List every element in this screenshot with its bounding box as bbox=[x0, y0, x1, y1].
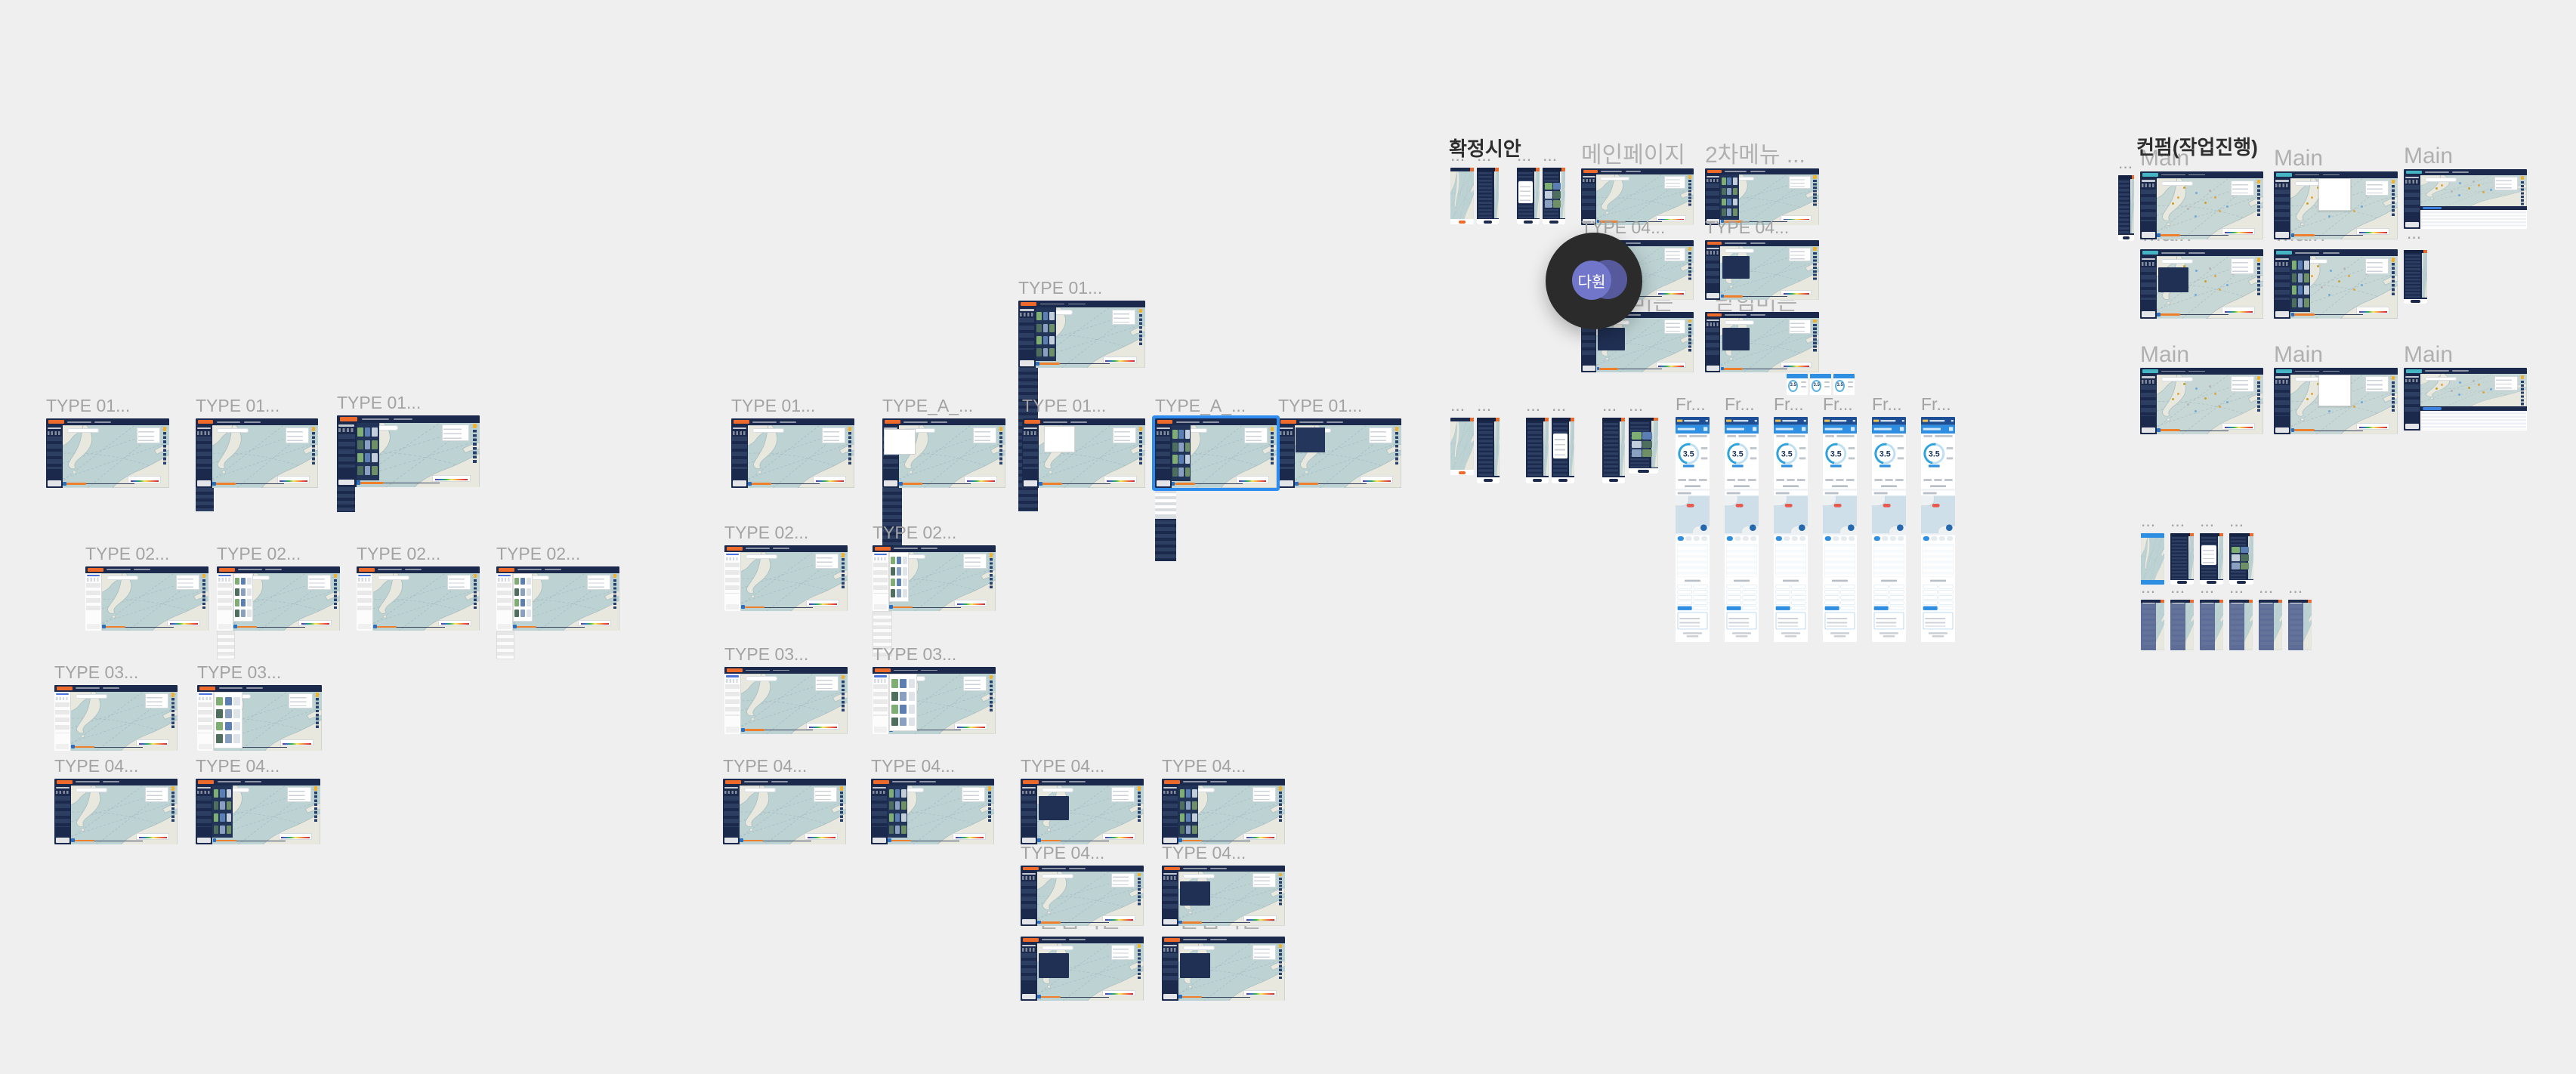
decor bbox=[365, 453, 370, 462]
decor bbox=[1742, 606, 1756, 610]
mini-panel-tooltip bbox=[1722, 328, 1750, 350]
decor bbox=[1723, 368, 1742, 370]
mini-header-dark bbox=[1872, 417, 1906, 425]
design-frame-map-dark[interactable] bbox=[1021, 866, 1144, 926]
mini-location-row bbox=[1774, 434, 1808, 440]
design-frame-phone-menu-dropdown[interactable] bbox=[1552, 418, 1574, 483]
mini-gauge-section: 3.5 bbox=[1676, 440, 1710, 477]
frame-title[interactable]: TYPE 02... bbox=[217, 544, 301, 563]
decor bbox=[216, 697, 223, 706]
decor bbox=[903, 589, 907, 597]
frame-title[interactable]: TYPE 01... bbox=[1018, 278, 1102, 298]
decor bbox=[1021, 302, 1036, 306]
frame-title[interactable]: TYPE 02... bbox=[85, 544, 169, 563]
decor bbox=[724, 796, 738, 827]
design-frame-map-light[interactable] bbox=[724, 667, 848, 734]
decor bbox=[895, 789, 900, 798]
mini-sidebar bbox=[337, 423, 357, 488]
frame-title[interactable]: ... bbox=[1543, 145, 1557, 165]
multiplayer-avatar-cursor[interactable]: 다훤 bbox=[1546, 233, 1642, 329]
decor bbox=[1185, 443, 1190, 452]
design-frame-map-dark[interactable] bbox=[1022, 418, 1145, 488]
decor bbox=[1042, 868, 1065, 869]
mini-info-box bbox=[1112, 310, 1136, 325]
decor bbox=[1742, 585, 1756, 588]
frame-title[interactable]: Main bbox=[2274, 342, 2323, 368]
frame-title[interactable]: Fr... bbox=[1774, 394, 1804, 414]
frame-title[interactable]: ... bbox=[1477, 395, 1491, 415]
design-frame-map-light[interactable] bbox=[54, 685, 178, 751]
frame-title[interactable]: TYPE 01... bbox=[337, 393, 421, 412]
decor bbox=[2405, 376, 2420, 378]
design-frame-map-dark[interactable] bbox=[1705, 240, 1819, 300]
mini-topbar bbox=[1021, 779, 1144, 785]
sidebar-extension[interactable] bbox=[496, 631, 514, 659]
design-frame-map-dark[interactable] bbox=[46, 418, 169, 488]
mini-topbar bbox=[217, 566, 340, 573]
mini-info-box bbox=[442, 424, 469, 441]
frame-title[interactable]: TYPE 01... bbox=[196, 396, 280, 415]
mini-gauge-section: 3.5 bbox=[1823, 440, 1857, 477]
decor bbox=[2328, 215, 2330, 218]
decor bbox=[724, 791, 739, 795]
decor bbox=[2452, 171, 2469, 173]
frame-title[interactable]: TYPE 03... bbox=[197, 662, 281, 682]
frame-title[interactable]: Fr... bbox=[1872, 394, 1902, 414]
decor bbox=[2361, 205, 2363, 208]
decor bbox=[281, 837, 309, 838]
avatar-user-name: 다훤 bbox=[1578, 270, 1606, 292]
decor bbox=[1172, 430, 1190, 477]
frame-title[interactable]: ... bbox=[2118, 153, 2133, 172]
decor bbox=[1929, 464, 1940, 467]
decor bbox=[338, 424, 354, 427]
decor bbox=[1727, 188, 1731, 196]
design-frame-map-dark[interactable] bbox=[731, 418, 854, 488]
decor bbox=[1022, 791, 1036, 795]
frame-title[interactable]: TYPE 02... bbox=[724, 523, 808, 542]
design-frame-map-dark[interactable] bbox=[1155, 418, 1277, 488]
design-frame-map-light[interactable] bbox=[724, 545, 848, 611]
decor bbox=[1707, 319, 1719, 321]
decor bbox=[746, 548, 769, 549]
frame-title[interactable]: ... bbox=[2141, 511, 2155, 530]
mini-info-box bbox=[814, 787, 837, 802]
mini-map-svg bbox=[2248, 536, 2253, 579]
decor bbox=[903, 557, 907, 564]
mini-info-box bbox=[287, 787, 310, 802]
frame-title[interactable]: ... bbox=[1602, 395, 1617, 415]
frame-title[interactable]: Main bbox=[2404, 144, 2453, 169]
decor bbox=[1022, 945, 1036, 946]
design-frame-map-dark[interactable] bbox=[1705, 312, 1819, 372]
frame-title[interactable]: ... bbox=[2259, 577, 2273, 597]
decor bbox=[1280, 480, 1294, 486]
mini-play-button bbox=[899, 482, 902, 486]
decor bbox=[746, 670, 769, 671]
design-frame-phone-menu[interactable] bbox=[2404, 250, 2427, 304]
frame-title[interactable]: TYPE 02... bbox=[496, 544, 580, 563]
design-frame-map-main-table[interactable] bbox=[2404, 368, 2527, 431]
design-frame-widget-card[interactable]: 3.5 bbox=[1787, 374, 1808, 395]
mini-header-blue bbox=[1810, 374, 1831, 378]
mini-info-box bbox=[2365, 181, 2389, 196]
decor bbox=[1583, 170, 1598, 173]
decor bbox=[1192, 801, 1197, 810]
decor bbox=[1734, 485, 1750, 487]
decor bbox=[1175, 483, 1195, 485]
design-frame-map-dark[interactable] bbox=[882, 418, 1005, 488]
frame-title[interactable]: TYPE 01... bbox=[731, 396, 815, 415]
decor bbox=[225, 734, 232, 743]
frame-title[interactable]: TYPE 02... bbox=[357, 544, 440, 563]
frame-title[interactable]: Fr... bbox=[1725, 394, 1755, 414]
mini-dropdown bbox=[1155, 488, 1176, 519]
decor bbox=[901, 789, 906, 798]
mini-timeline bbox=[2293, 429, 2363, 432]
frame-title[interactable]: ... bbox=[2229, 577, 2244, 597]
mini-timeline bbox=[2160, 234, 2229, 237]
decor bbox=[957, 727, 985, 728]
design-frame-map-dark[interactable] bbox=[1021, 937, 1144, 1001]
frame-title[interactable]: Main bbox=[2140, 342, 2189, 368]
decor bbox=[2304, 298, 2309, 307]
decor bbox=[1459, 471, 1466, 474]
design-frame-map-main[interactable] bbox=[2140, 368, 2263, 434]
frame-title[interactable]: 메인페이지 bbox=[1581, 143, 1685, 168]
decor bbox=[1049, 312, 1055, 320]
design-frame-map-light[interactable] bbox=[873, 667, 996, 734]
frame-title[interactable]: TYPE 04... bbox=[1162, 756, 1246, 776]
design-frame-phone-menu[interactable] bbox=[1526, 418, 1549, 483]
decor bbox=[1846, 479, 1855, 481]
design-frame-map-dark[interactable] bbox=[337, 415, 480, 487]
frame-title[interactable]: ... bbox=[2200, 577, 2214, 597]
mini-yellow-button bbox=[613, 574, 617, 578]
frame-title[interactable]: ... bbox=[2229, 511, 2244, 530]
decor bbox=[241, 578, 246, 585]
mini-forecast-map bbox=[1823, 495, 1857, 533]
figma-canvas[interactable]: 닫힘버튼닫힘버튼닫힘버튼닫힘버튼MainMain... TYPE 01... T… bbox=[0, 0, 2576, 1074]
mini-yellow-button bbox=[1688, 175, 1691, 179]
decor bbox=[233, 734, 240, 743]
decor bbox=[235, 599, 239, 606]
design-frame-map-dark[interactable] bbox=[1162, 937, 1285, 1001]
mini-search-box bbox=[2425, 177, 2457, 182]
decor bbox=[2423, 407, 2442, 409]
decor bbox=[1246, 993, 1274, 995]
decor bbox=[726, 554, 740, 555]
decor bbox=[2405, 424, 2420, 429]
mini-map-tools bbox=[1271, 432, 1274, 465]
design-frame-phone-menu-thumbs[interactable] bbox=[1543, 168, 1565, 224]
decor bbox=[1949, 427, 1953, 431]
decor bbox=[66, 483, 86, 485]
design-frame-phone-menu[interactable] bbox=[1477, 168, 1499, 224]
frame-title[interactable]: TYPE 04... bbox=[723, 756, 807, 776]
section-header-label[interactable]: 컨펌(작업진행) bbox=[2136, 137, 2258, 157]
design-frame-weather-card[interactable]: 3.5 bbox=[1774, 417, 1808, 642]
mini-play-button bbox=[741, 605, 744, 609]
mini-map-svg bbox=[1494, 171, 1499, 218]
design-frame-phone-menu[interactable] bbox=[1477, 418, 1500, 483]
decor bbox=[1874, 479, 1883, 481]
design-frame-map-light[interactable] bbox=[217, 566, 340, 631]
frame-title[interactable]: Main bbox=[2274, 146, 2323, 171]
frame-title[interactable]: Fr... bbox=[1921, 394, 1951, 414]
decor bbox=[1684, 420, 1699, 421]
mini-yellow-button bbox=[334, 574, 338, 578]
frame-title[interactable]: ... bbox=[1526, 395, 1540, 415]
design-frame-map-dark[interactable] bbox=[196, 418, 318, 488]
design-frame-map-dark[interactable] bbox=[1278, 418, 1401, 488]
frame-title[interactable]: TYPE 04... bbox=[1021, 843, 1104, 863]
decor bbox=[1882, 536, 1888, 541]
mini-see-more bbox=[1774, 483, 1808, 489]
mini-forecast-map bbox=[1921, 495, 1955, 533]
decor bbox=[1923, 606, 1938, 610]
design-frame-map-main-table[interactable] bbox=[2404, 169, 2527, 229]
design-frame-map-main[interactable] bbox=[2274, 249, 2398, 319]
mini-topbar bbox=[2259, 600, 2282, 603]
mini-info-box bbox=[815, 676, 839, 691]
mini-stats-row bbox=[1676, 477, 1710, 483]
decor bbox=[134, 569, 150, 570]
mini-footer-text bbox=[1921, 631, 1955, 640]
decor bbox=[2160, 429, 2180, 431]
mini-yellow-button bbox=[1271, 427, 1274, 431]
decor bbox=[1799, 524, 1805, 531]
sidebar-extension[interactable] bbox=[337, 487, 355, 512]
decor bbox=[105, 626, 125, 628]
decor bbox=[1784, 293, 1809, 295]
mini-map-tools bbox=[990, 558, 993, 590]
design-frame-phone-map[interactable] bbox=[1450, 168, 1474, 224]
decor bbox=[214, 789, 231, 833]
design-frame-map-dark[interactable] bbox=[1705, 168, 1819, 225]
design-frame-map-light[interactable] bbox=[496, 566, 619, 631]
decor bbox=[340, 417, 358, 421]
design-frame-widget-card[interactable]: 3.5 bbox=[1810, 374, 1831, 395]
design-frame-phone-menu-dropdown[interactable] bbox=[1517, 168, 1540, 224]
frame-title[interactable]: ... bbox=[2200, 511, 2214, 530]
design-frame-weather-card[interactable]: 3.5 bbox=[1921, 417, 1955, 642]
mini-play-button bbox=[1178, 838, 1181, 842]
decor bbox=[215, 840, 236, 842]
decor bbox=[196, 437, 211, 469]
mini-topbar bbox=[1155, 418, 1277, 425]
mini-topbar bbox=[1162, 779, 1285, 785]
decor bbox=[1043, 421, 1067, 423]
design-frame-phone-panel[interactable] bbox=[2229, 600, 2253, 650]
frame-title[interactable]: TYPE 03... bbox=[54, 662, 138, 682]
decor bbox=[1192, 789, 1197, 798]
mini-yellow-button bbox=[1688, 247, 1691, 251]
design-frame-phone-panel[interactable] bbox=[2259, 600, 2282, 650]
decor bbox=[2204, 202, 2207, 204]
frame-title[interactable]: TYPE_A_... bbox=[1155, 396, 1246, 415]
mini-search-box bbox=[2161, 259, 2193, 264]
design-frame-map-light[interactable] bbox=[357, 566, 480, 631]
decor bbox=[1683, 632, 1702, 634]
section-header-label[interactable]: 확정시안 bbox=[1449, 139, 1521, 159]
design-frame-map-dark[interactable] bbox=[196, 779, 320, 844]
mini-info-box bbox=[1111, 873, 1135, 887]
decor bbox=[1022, 873, 1036, 875]
frame-title[interactable]: 2차메뉴 ... bbox=[1705, 143, 1805, 168]
decor bbox=[2452, 370, 2469, 372]
design-frame-map-dark[interactable] bbox=[723, 779, 846, 844]
design-frame-phone-panel[interactable] bbox=[2170, 600, 2194, 650]
mini-play-button bbox=[1037, 838, 1040, 842]
decor bbox=[1181, 840, 1202, 842]
mini-map-tools bbox=[312, 432, 316, 465]
design-frame-map-light[interactable] bbox=[197, 685, 322, 751]
decor bbox=[1040, 996, 1061, 998]
frame-title[interactable]: TYPE_A_... bbox=[882, 396, 973, 415]
mini-timeline bbox=[2160, 313, 2229, 316]
frame-title[interactable]: ... bbox=[1552, 395, 1566, 415]
design-frame-map-dark[interactable] bbox=[871, 779, 994, 844]
decor bbox=[1583, 176, 1595, 177]
decor bbox=[1840, 585, 1855, 588]
frame-title[interactable]: TYPE 01... bbox=[46, 396, 130, 415]
design-frame-weather-card[interactable]: 3.5 bbox=[1725, 417, 1759, 642]
design-frame-map-dark[interactable] bbox=[1581, 168, 1694, 225]
mini-map-svg bbox=[2130, 179, 2134, 233]
decor bbox=[1456, 459, 1456, 462]
frame-title[interactable]: ... bbox=[1629, 395, 1643, 415]
decor bbox=[2406, 171, 2421, 174]
mini-yellow-button bbox=[840, 786, 844, 790]
design-frame-map-light[interactable] bbox=[85, 566, 208, 631]
decor bbox=[1840, 536, 1846, 541]
mini-info-box bbox=[1369, 427, 1392, 443]
design-frame-weather-card[interactable]: 3.5 bbox=[1676, 417, 1710, 642]
frame-title[interactable]: Fr... bbox=[1823, 394, 1853, 414]
design-frame-weather-card[interactable]: 3.5 bbox=[1872, 417, 1906, 642]
frame-title[interactable]: TYPE 04... bbox=[54, 756, 138, 776]
decor bbox=[301, 623, 329, 625]
mini-timeline bbox=[1040, 839, 1109, 842]
mini-map-svg bbox=[1543, 421, 1549, 476]
frame-title[interactable]: Main bbox=[2404, 342, 2453, 368]
mini-search-box bbox=[378, 576, 409, 580]
decor bbox=[1722, 188, 1726, 196]
design-frame-map-main[interactable] bbox=[2274, 171, 2398, 239]
decor bbox=[1105, 837, 1133, 838]
mini-map-tools bbox=[314, 792, 318, 823]
design-frame-map-dark[interactable] bbox=[1162, 866, 1285, 926]
frame-title[interactable]: ... bbox=[1450, 395, 1465, 415]
design-frame-phone-panel[interactable] bbox=[2200, 600, 2223, 650]
design-frame-map-dark[interactable] bbox=[1162, 779, 1285, 844]
frame-title[interactable]: ... bbox=[2170, 511, 2185, 530]
frame-title[interactable]: Fr... bbox=[1676, 394, 1706, 414]
decor bbox=[1931, 536, 1937, 541]
mini-stats-row bbox=[1725, 477, 1759, 483]
design-frame-phone-panel[interactable] bbox=[2141, 600, 2164, 650]
design-frame-widget-card[interactable]: 3.5 bbox=[1833, 374, 1855, 395]
frame-title[interactable]: TYPE 01... bbox=[1278, 396, 1362, 415]
design-frame-map-dark[interactable] bbox=[1021, 779, 1144, 844]
decor bbox=[1042, 939, 1065, 940]
mini-info-box bbox=[447, 575, 471, 590]
frame-title[interactable]: TYPE 04... bbox=[1162, 843, 1246, 863]
decor bbox=[244, 421, 261, 423]
design-frame-phone-menu[interactable] bbox=[2118, 175, 2134, 241]
design-frame-phone-menu-thumbs[interactable] bbox=[1629, 418, 1658, 474]
frame-title[interactable]: TYPE 04... bbox=[871, 756, 955, 776]
decor bbox=[516, 626, 536, 628]
mini-timeline bbox=[1599, 368, 1662, 371]
decor bbox=[1923, 601, 1938, 605]
decor bbox=[1042, 781, 1065, 782]
decor bbox=[874, 675, 888, 677]
frame-title[interactable]: TYPE 04... bbox=[1705, 218, 1789, 237]
decor bbox=[1727, 199, 1731, 206]
mini-footer bbox=[2404, 299, 2427, 304]
sidebar-extension[interactable] bbox=[196, 488, 214, 511]
frame-title[interactable]: TYPE 04... bbox=[1021, 756, 1104, 776]
mini-topbar bbox=[2404, 169, 2527, 175]
decor bbox=[1047, 985, 1051, 988]
decor bbox=[1742, 601, 1756, 605]
frame-title[interactable]: TYPE 01... bbox=[1022, 396, 1106, 415]
frame-title[interactable]: TYPE 04... bbox=[196, 756, 280, 776]
frame-title[interactable]: ... bbox=[2170, 577, 2185, 597]
decor bbox=[2241, 563, 2249, 569]
sidebar-extension[interactable] bbox=[1155, 488, 1176, 561]
mini-menu-rows bbox=[2405, 255, 2420, 298]
design-frame-map-main[interactable] bbox=[2274, 368, 2398, 434]
design-frame-map-main[interactable] bbox=[2140, 171, 2263, 239]
decor bbox=[103, 781, 119, 782]
decor bbox=[1781, 632, 1800, 634]
frame-title[interactable]: ... bbox=[2141, 577, 2155, 597]
mini-topbar bbox=[54, 685, 178, 692]
decor bbox=[2232, 563, 2240, 569]
design-frame-phone-panel[interactable] bbox=[2288, 600, 2312, 650]
design-frame-map-main[interactable] bbox=[2140, 249, 2263, 319]
decor bbox=[1022, 919, 1036, 924]
decor bbox=[744, 781, 768, 782]
decor bbox=[873, 684, 888, 716]
design-frame-phone-map[interactable] bbox=[1450, 418, 1474, 475]
design-frame-weather-card[interactable]: 3.5 bbox=[1823, 417, 1857, 642]
decor bbox=[1040, 921, 1061, 924]
frame-title[interactable]: TYPE 03... bbox=[873, 644, 956, 664]
frame-title[interactable]: TYPE 02... bbox=[873, 523, 956, 542]
design-frame-map-dark[interactable] bbox=[1018, 301, 1145, 368]
design-frame-map-dark[interactable] bbox=[54, 779, 178, 844]
decor bbox=[1181, 996, 1202, 998]
mini-info-box bbox=[2365, 376, 2389, 391]
design-frame-map-light[interactable] bbox=[873, 545, 996, 611]
mini-map-tools bbox=[1813, 324, 1816, 353]
mini-info-box bbox=[289, 693, 312, 708]
decor bbox=[1734, 536, 1740, 541]
decor bbox=[358, 624, 372, 629]
design-frame-phone-menu[interactable] bbox=[1602, 418, 1625, 483]
mini-map-tools bbox=[988, 792, 992, 823]
frame-title[interactable]: ... bbox=[2288, 577, 2303, 597]
frame-title[interactable]: TYPE 03... bbox=[724, 644, 808, 664]
mini-topbar bbox=[871, 779, 994, 785]
mini-map-tools bbox=[334, 579, 338, 610]
decor bbox=[1558, 479, 1568, 482]
sidebar-extension[interactable] bbox=[217, 631, 235, 659]
